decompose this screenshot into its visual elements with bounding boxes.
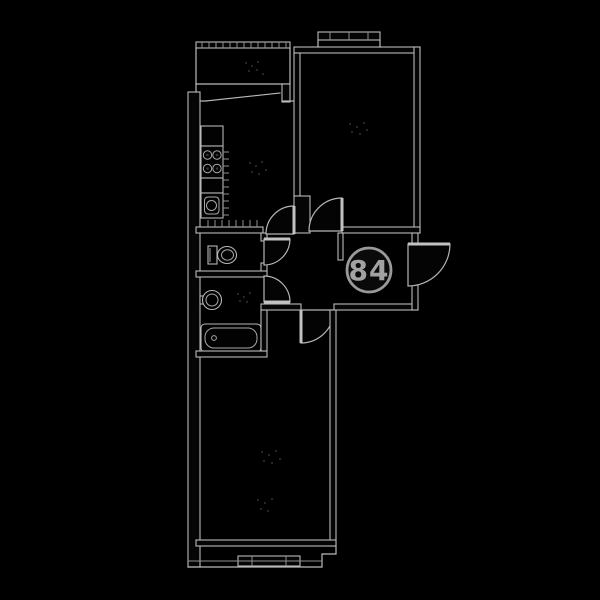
bedroom-right-wall <box>414 47 420 233</box>
wall-hatch <box>208 220 257 227</box>
stove-icon <box>201 146 223 178</box>
kitchen-sink-icon <box>201 193 223 218</box>
faint-room-label <box>245 61 264 75</box>
hallway-bottom-wall-right <box>334 304 418 310</box>
floorplan-canvas: 84 <box>0 0 600 600</box>
entry-wall-stub-top <box>412 233 418 244</box>
kitchen <box>200 84 294 218</box>
apartment-number-badge: 84 <box>347 248 391 292</box>
outer-left-wall <box>188 92 200 567</box>
bedroom-top-wall <box>294 47 420 53</box>
faint-room-label <box>237 292 251 303</box>
entry-wall-stub-bottom <box>412 285 418 310</box>
counter-edge-ticks <box>223 152 229 215</box>
kitchen-door-swing-icon <box>266 206 294 234</box>
bathroom-right-wall <box>261 310 267 351</box>
kitchen-wc-wall <box>196 227 263 233</box>
bathroom-bottom-wall <box>196 351 267 357</box>
hallway-top-wall <box>342 227 420 233</box>
living-room-bottom-wall <box>196 540 336 546</box>
wc-bath-wall <box>196 271 267 277</box>
kitchen-cabinet <box>201 126 223 146</box>
window-icon <box>238 556 300 566</box>
floorplan-screenshot: 84 <box>0 0 600 600</box>
hallway-wall-column <box>294 196 310 233</box>
kitchen-counter <box>201 178 223 193</box>
apartment-number: 84 <box>349 254 390 287</box>
window-icon <box>318 32 380 47</box>
balcony-door-leaf <box>206 93 280 101</box>
bathtub-icon <box>201 324 261 352</box>
entrance-door-swing-icon <box>408 244 450 286</box>
wc-door-swing-icon <box>264 239 290 265</box>
washbasin-icon <box>200 291 222 310</box>
vestibule-wall-stub <box>338 233 343 260</box>
bedroom <box>294 32 420 233</box>
balcony-kitchen-wall-stub <box>282 84 290 102</box>
faint-room-label <box>257 450 281 512</box>
kitchen-bedroom-divider-wall <box>294 53 300 196</box>
bedroom-door-swing-icon <box>309 198 342 231</box>
balcony <box>196 42 290 84</box>
faint-room-label <box>349 122 368 135</box>
living-room-door-swing-icon <box>301 310 334 343</box>
toilet-icon <box>208 246 237 264</box>
living-room-right-wall <box>330 310 336 546</box>
faint-room-label <box>249 161 267 175</box>
bathroom <box>196 291 267 358</box>
wc <box>196 220 267 277</box>
balcony-outline <box>196 48 290 84</box>
hallway-bottom-wall-left <box>261 304 301 310</box>
bathroom-door-swing-icon <box>264 276 290 302</box>
balcony-rail-icon <box>196 42 290 48</box>
